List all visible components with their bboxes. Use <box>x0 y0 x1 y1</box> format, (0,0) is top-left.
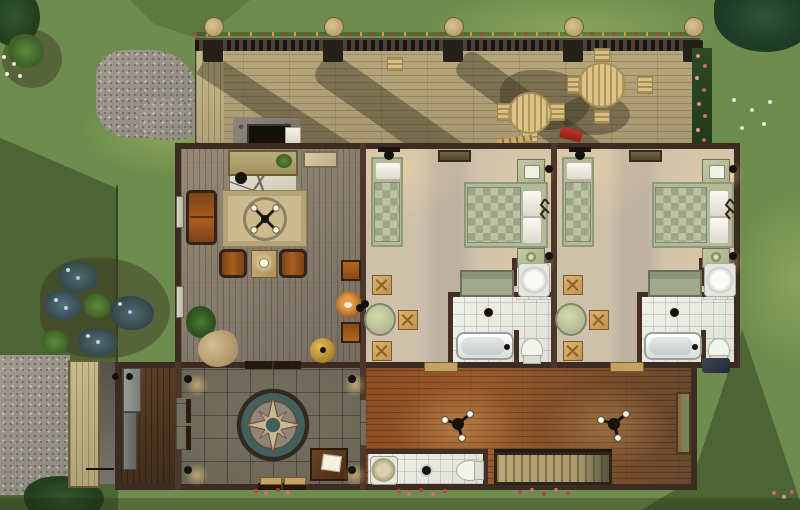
wall-sconce[interactable] <box>361 300 369 308</box>
double-bed-blanket <box>467 187 521 243</box>
patio-chair[interactable] <box>594 48 610 62</box>
tub-faucet <box>692 344 698 350</box>
patio-table[interactable] <box>578 62 626 108</box>
tub-faucet <box>504 344 510 350</box>
sconce-glow <box>338 368 372 402</box>
bath2-wall-left <box>637 292 642 363</box>
ceiling-lamp-shade <box>384 150 394 160</box>
wall-north <box>175 143 740 149</box>
patio-chair[interactable] <box>594 110 610 124</box>
foyer-hall-opening <box>360 400 366 446</box>
wall-plaque[interactable] <box>629 150 662 162</box>
dinette-chair[interactable] <box>341 260 361 281</box>
game-viewport <box>0 0 800 510</box>
radio[interactable] <box>709 165 725 179</box>
fire-kettle[interactable] <box>235 172 247 184</box>
mudroom-shelf[interactable] <box>123 412 137 470</box>
bed-pillow <box>375 162 401 180</box>
door-mat <box>424 362 458 372</box>
porch-handle <box>86 468 114 470</box>
door-knob <box>112 373 119 380</box>
tub-basin <box>461 337 505 355</box>
bath-ceiling-light <box>668 306 681 319</box>
sconce-glow <box>180 368 214 402</box>
cat-white-patch <box>344 302 352 308</box>
flower-vase <box>526 252 536 262</box>
hall-bench[interactable] <box>676 392 691 454</box>
tub-basin <box>649 337 693 355</box>
x-stool[interactable] <box>372 275 392 295</box>
window <box>176 196 184 228</box>
loveseat-cushion-line <box>190 216 213 218</box>
red-flowers-foyer-south <box>252 487 296 497</box>
wall-sconce[interactable] <box>729 252 737 260</box>
window <box>176 286 184 318</box>
wall-art-map[interactable] <box>303 151 338 168</box>
door-mat <box>284 477 306 485</box>
deck-post <box>684 17 704 37</box>
gravel-path-southwest <box>0 355 70 495</box>
wall-sconce[interactable] <box>729 165 737 173</box>
double-door-north-foyer[interactable] <box>245 361 301 369</box>
flower-vase <box>711 252 721 262</box>
wall-sconce[interactable] <box>348 466 356 474</box>
bed-blanket <box>374 182 400 242</box>
radio[interactable] <box>524 165 540 179</box>
bath1-stub <box>514 330 519 363</box>
double-bed-blanket <box>655 187 707 243</box>
outdoor-bin[interactable] <box>702 358 730 373</box>
pedestal-sink[interactable] <box>370 456 398 485</box>
x-stool[interactable] <box>563 275 583 295</box>
ceiling-light-4-bulb[interactable] <box>249 203 281 235</box>
gravel-path-north2 <box>140 100 200 140</box>
armchair[interactable] <box>279 249 307 278</box>
toilet-tank <box>474 461 484 480</box>
sconce-glow <box>180 458 214 492</box>
bed-pillow <box>709 217 729 244</box>
hallbath-wall-top <box>366 449 487 454</box>
x-stool[interactable] <box>563 341 583 361</box>
door-leaf[interactable] <box>186 399 191 423</box>
foyer-west-door-opening <box>176 398 186 450</box>
post-brace <box>323 40 343 62</box>
deck-post <box>444 17 464 37</box>
toilet-tank <box>523 355 541 364</box>
white-flowers-east <box>728 92 788 140</box>
white-flowers <box>0 52 28 82</box>
wall-sconce[interactable] <box>184 375 192 383</box>
round-table[interactable] <box>364 303 396 336</box>
counter-sink[interactable] <box>704 263 736 297</box>
x-stool[interactable] <box>589 310 609 330</box>
wall-sconce[interactable] <box>545 252 553 260</box>
bath1-wall-left <box>448 292 453 363</box>
door-mat <box>610 362 644 372</box>
antler-rack[interactable] <box>538 197 552 221</box>
x-stool[interactable] <box>372 341 392 361</box>
wall-sconce[interactable] <box>184 466 192 474</box>
foot-bench[interactable] <box>460 270 514 297</box>
purple-flowers <box>48 262 158 354</box>
wall-sconce[interactable] <box>545 165 553 173</box>
urn-top <box>320 347 326 353</box>
deck-post <box>564 17 584 37</box>
door-mat <box>260 477 282 485</box>
deck-post <box>204 17 224 37</box>
door-leaf[interactable] <box>186 426 191 450</box>
table-lamp[interactable] <box>259 258 269 268</box>
antler-rack[interactable] <box>723 197 737 221</box>
post-brace <box>563 40 583 62</box>
bath-ceiling-light <box>482 306 495 319</box>
counter-sink[interactable] <box>518 263 550 297</box>
post-brace <box>443 40 463 62</box>
floor-drain <box>420 464 433 477</box>
stair-end-shadow <box>584 453 611 484</box>
post-brace <box>203 40 223 62</box>
foot-bench[interactable] <box>648 270 702 297</box>
rose-blooms <box>692 50 712 146</box>
wall-plaque[interactable] <box>438 150 471 162</box>
compass-floor-medallion <box>236 388 310 462</box>
ceiling-lamp-shade <box>575 150 585 160</box>
door-knob <box>126 373 133 380</box>
sconce-glow <box>338 458 372 492</box>
ceiling-light-3-bulb[interactable] <box>596 406 632 442</box>
patio-table[interactable] <box>508 92 552 134</box>
x-stool[interactable] <box>398 310 418 330</box>
south-grass-dark-strip <box>0 498 800 510</box>
deck-post <box>324 17 344 37</box>
mantel-plant <box>276 154 292 168</box>
bed-blanket <box>565 182 591 242</box>
round-table[interactable] <box>555 303 587 336</box>
wall-east-lower <box>691 362 697 490</box>
patio-chair[interactable] <box>387 57 403 71</box>
patio-chair[interactable] <box>637 76 653 94</box>
ceiling-light-3-bulb[interactable] <box>440 406 476 442</box>
armchair[interactable] <box>219 249 247 278</box>
wall-west-lower <box>115 362 121 490</box>
wall-west-upper <box>175 143 181 368</box>
bed-pillow <box>566 162 592 180</box>
wall-sconce[interactable] <box>348 375 356 383</box>
bed-pillow <box>522 217 542 244</box>
